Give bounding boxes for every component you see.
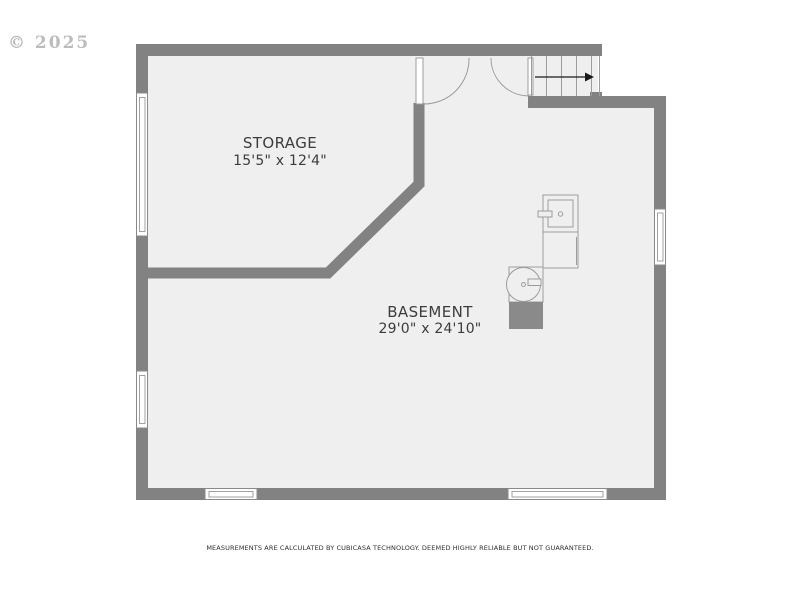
storage-room-label: STORAGE xyxy=(243,134,317,152)
floor-plan-drawing xyxy=(0,0,800,600)
basement-room-dimensions: 29'0" x 24'10" xyxy=(379,321,482,337)
basement-room-label: BASEMENT xyxy=(387,303,473,321)
window-bottom-right xyxy=(508,489,607,500)
storage-room-dimensions: 15'5" x 12'4" xyxy=(233,153,327,169)
measurement-disclaimer: MEASUREMENTS ARE CALCULATED BY CUBICASA … xyxy=(206,544,593,552)
top-wall xyxy=(136,44,602,56)
window-left-upper xyxy=(137,93,148,236)
copyright-watermark: © 2025 xyxy=(8,33,90,53)
window-right xyxy=(655,209,666,265)
window-bottom-left xyxy=(205,489,257,500)
water-heater-symbol xyxy=(507,267,544,302)
floor-plan-page: © 2025 STORAGE 15'5" x 12'4" BASEMENT 29… xyxy=(0,0,800,600)
platform-symbol xyxy=(509,302,543,329)
right-wall xyxy=(654,96,666,500)
window-left-lower xyxy=(137,371,148,428)
washer-symbol xyxy=(538,195,578,232)
cabinet-symbol xyxy=(543,232,578,268)
